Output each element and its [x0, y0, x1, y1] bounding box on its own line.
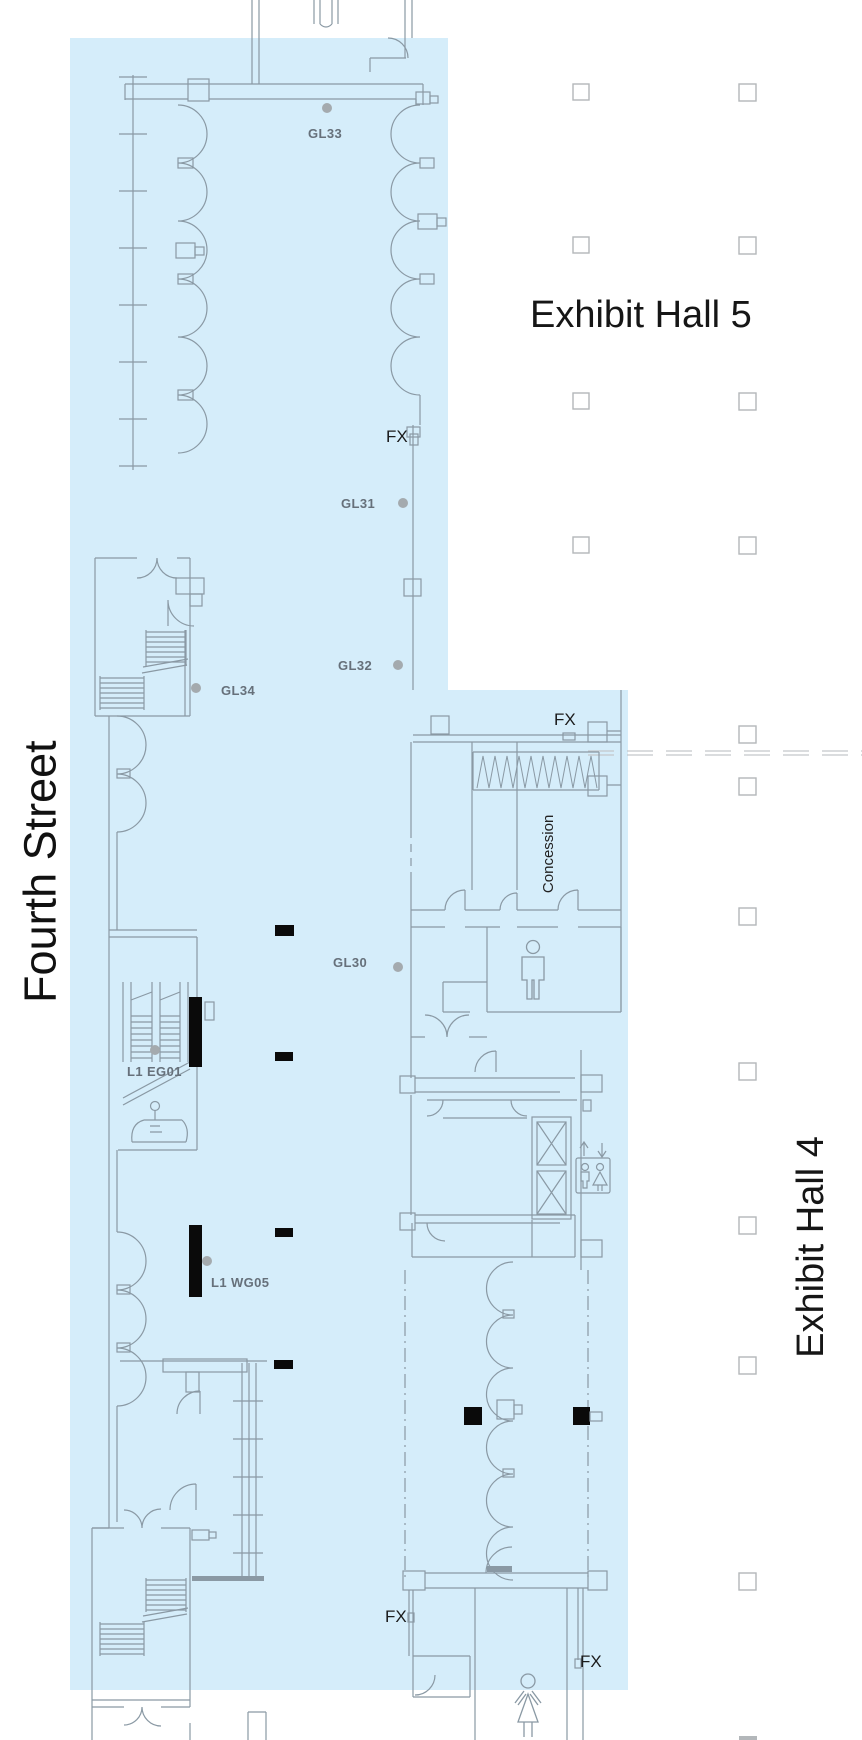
marker-fx-north: FX: [386, 428, 408, 446]
expansion-joint-line: [588, 751, 862, 755]
marker-fx-south-east: FX: [580, 1653, 602, 1671]
concession-label: Concession: [541, 804, 557, 904]
floor-plan: Exhibit Hall 5 Exhibit Hall 4 Fourth Str…: [0, 0, 862, 1740]
street-label: Fourth Street: [16, 710, 63, 1034]
marker-fx-south-west: FX: [385, 1608, 407, 1626]
marker-gl31: GL31: [341, 497, 375, 511]
floorplan-linework: [0, 0, 862, 1740]
marker-fx-concession: FX: [554, 711, 576, 729]
hall4-label: Exhibit Hall 4: [792, 1097, 832, 1397]
marker-gl34: GL34: [221, 684, 255, 698]
hall5-label: Exhibit Hall 5: [530, 296, 752, 336]
marker-gl30: GL30: [333, 956, 367, 970]
marker-eg01: L1 EG01: [127, 1065, 182, 1079]
marker-gl33: GL33: [308, 127, 342, 141]
marker-gl32: GL32: [338, 659, 372, 673]
marker-wg05: L1 WG05: [211, 1276, 269, 1290]
